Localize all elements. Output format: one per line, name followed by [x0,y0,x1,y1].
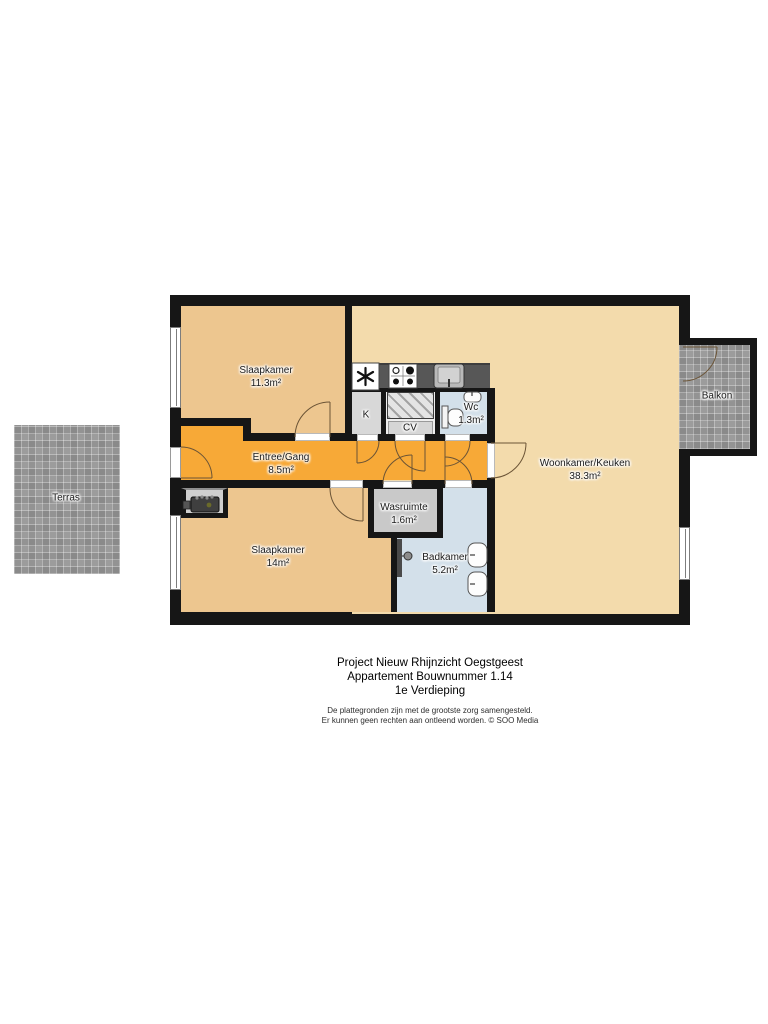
label-entree-area: 8.5m² [253,464,310,477]
label-slaapkamer-1-area: 11.3m² [239,377,292,390]
wall-kast-cv [381,392,386,438]
label-cv-name: CV [403,422,417,435]
label-wc-area: 1.3m² [458,414,484,427]
label-woonkamer-name: Woonkamer/Keuken [540,457,630,470]
door-opening-slaapkamer2 [330,480,363,488]
label-entree-name: Entree/Gang [253,451,310,464]
footer-disclaimer-1: De plattegronden zijn met de grootste zo… [170,706,690,716]
label-wc-name: Wc [458,401,484,414]
label-badkamer-area: 5.2m² [422,564,468,577]
wall-hall-step [243,418,251,441]
label-slaapkamer-1: Slaapkamer 11.3m² [239,364,292,390]
wall-hall-bottom-a [228,480,330,488]
label-balkon: Balkon [702,390,733,403]
wall-hall-bottom-b [363,480,383,488]
label-woonkamer: Woonkamer/Keuken 38.3m² [540,457,630,483]
wall-hall-top-left [181,418,250,426]
label-slaapkamer-1-name: Slaapkamer [239,364,292,377]
front-door-opening [170,447,181,478]
footer-title-block: Project Nieuw Rhijnzicht Oegstgeest Appa… [170,656,690,698]
label-badkamer: Badkamer 5.2m² [422,551,468,577]
label-slaapkamer-2-area: 14m² [251,557,304,570]
meter-niche [181,488,228,518]
wall-hall-bottom-d [472,480,487,488]
wall-slaapkamer2-badkamer [391,538,397,612]
floorplan-page: { "plan": { "rooms": { "slaapkamer1": {"… [0,0,768,1024]
window-woonkamer [679,527,690,580]
door-opening-wasruimte [383,481,412,488]
room-entree-gang-left [181,426,248,441]
label-wasruimte-area: 1.6m² [380,514,427,527]
door-opening-badkamer [445,480,472,488]
wall-hall-bottom-c [412,480,445,488]
label-badkamer-name: Badkamer [422,551,468,564]
window-slaapkamer2 [170,515,181,590]
wall-under-counter [352,388,490,392]
label-cv: CV [403,422,417,435]
window-slaapkamer1 [170,327,181,408]
door-opening-slaapkamer1 [295,433,330,441]
label-wasruimte: Wasruimte 1.6m² [380,501,427,527]
label-kast: K [363,409,370,422]
wall-right-lower [487,478,495,612]
footer-project: Project Nieuw Rhijnzicht Oegstgeest [170,656,690,670]
label-wc: Wc 1.3m² [458,401,484,427]
footer-floor: 1e Verdieping [170,684,690,698]
kitchen-counter [352,363,490,390]
door-opening-wc [445,434,470,441]
footer-disclaimer-2: Er kunnen geen rechten aan ontleend word… [170,716,690,726]
wall-slaapkamer1-right [345,306,352,441]
label-terras-name: Terras [52,492,80,505]
label-terras: Terras [52,492,80,505]
label-wasruimte-name: Wasruimte [380,501,427,514]
wall-hall-top-a [251,434,295,441]
room-badkamer-upper [443,488,487,538]
label-balkon-name: Balkon [702,390,733,403]
door-opening-woonkamer [487,443,495,478]
label-entree-gang: Entree/Gang 8.5m² [253,451,310,477]
wall-hall-top-e [470,434,487,441]
room-entree-gang [181,441,487,480]
wall-right-upper [487,388,495,443]
label-slaapkamer-2: Slaapkamer 14m² [251,544,304,570]
wall-hall-top-b [330,434,357,441]
door-opening-kast [357,434,378,441]
wall-cv-wc [435,392,440,438]
door-opening-cv [395,434,425,441]
label-slaapkamer-2-name: Slaapkamer [251,544,304,557]
label-woonkamer-area: 38.3m² [540,470,630,483]
footer-apartment: Appartement Bouwnummer 1.14 [170,670,690,684]
footer-disclaimer-block: De plattegronden zijn met de grootste zo… [170,706,690,726]
cv-unit-hatch [387,392,434,419]
label-kast-name: K [363,409,370,422]
